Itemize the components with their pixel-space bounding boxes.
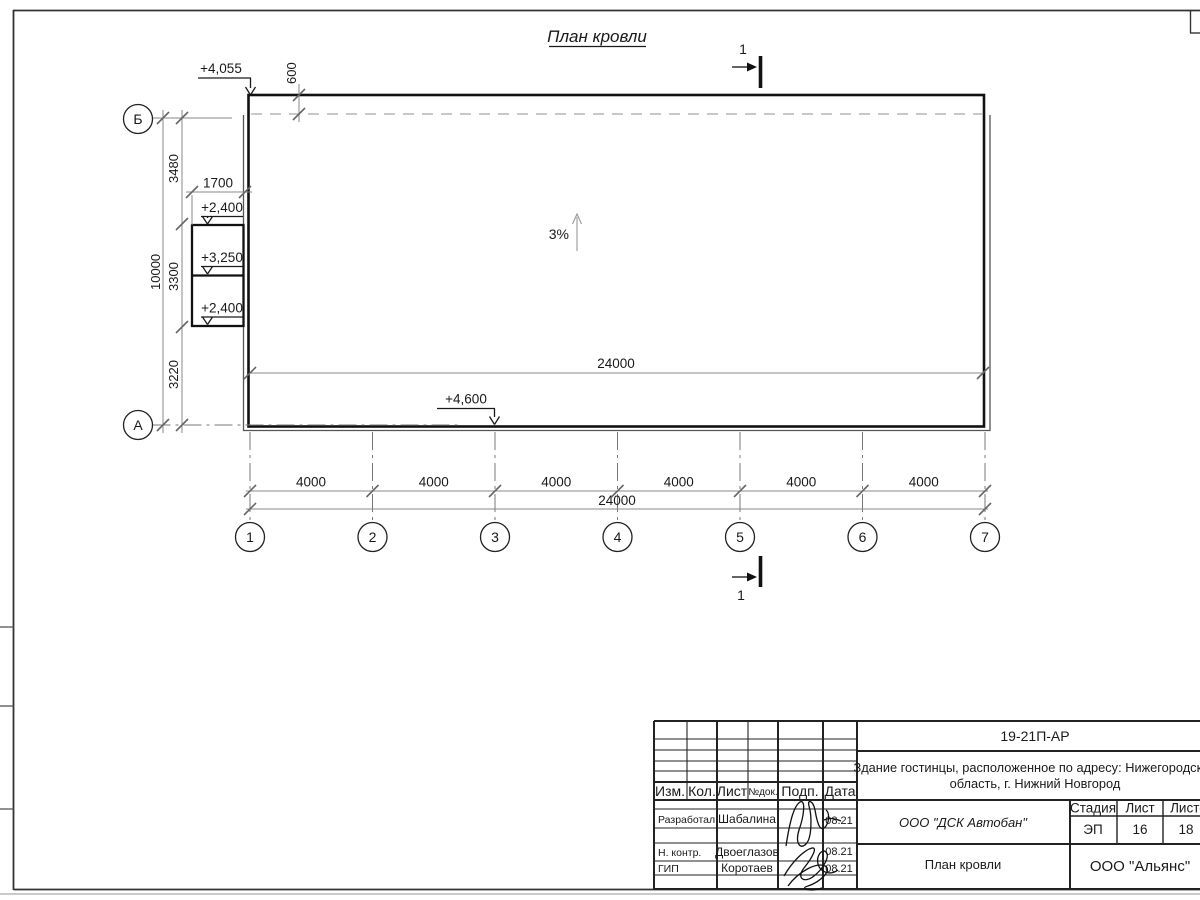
stage-header: Стадия [1070, 801, 1116, 816]
canopy-width-value: 1700 [203, 176, 233, 191]
left-segment-3-value: 3220 [166, 360, 181, 389]
section-mark-bottom: 1 [732, 556, 761, 603]
row-role-ncontrol: Н. контр. [658, 847, 701, 859]
row-name-gip: Коротаев [721, 861, 773, 875]
sheets-header: Листов [1170, 801, 1200, 816]
drawing-sheet: План кровли 24000 3% [0, 0, 1200, 900]
roof-outline [249, 95, 985, 427]
bottom-segment-value: 4000 [909, 475, 939, 490]
axis-b-label: Б [133, 111, 142, 127]
sheet-header: Лист [1125, 801, 1154, 816]
col-header-ndok: №док. [748, 787, 777, 798]
axis-3-label: 3 [491, 529, 499, 545]
overhang-value: 600 [284, 62, 299, 84]
axis-2-label: 2 [369, 529, 377, 545]
axis-7-label: 7 [981, 529, 989, 545]
section-mark-top: 1 [732, 41, 761, 88]
project-name-line1: Здание гостинцы, расположенное по адресу… [853, 760, 1200, 775]
axis-5-label: 5 [736, 529, 744, 545]
axis-1-label: 1 [246, 529, 254, 545]
left-total-value: 10000 [148, 254, 163, 290]
bottom-segment-value: 4000 [419, 475, 449, 490]
section-label-top: 1 [739, 41, 747, 57]
axis-a-label: А [133, 417, 143, 433]
section-arrow-bottom [747, 573, 757, 582]
bottom-total-value: 24000 [598, 493, 636, 508]
elevation-canopy-low-value: +2,400 [201, 301, 243, 316]
row-name-developer: Шабалина [718, 812, 776, 826]
row-role-gip: ГИП [658, 863, 679, 875]
left-segment-1-value: 3480 [166, 154, 181, 183]
bottom-segment-value: 4000 [786, 475, 816, 490]
project-name-line2: область, г. Нижний Новгород [950, 776, 1121, 791]
roof-plan-drawing: План кровли 24000 3% [0, 0, 1200, 900]
col-header-podp: Подп. [781, 783, 818, 799]
section-arrow-top [747, 63, 757, 72]
axis-6-label: 6 [859, 529, 867, 545]
contractor-name: ООО "ДСК Автобан" [899, 815, 1028, 830]
doc-code: 19-21П-АР [1000, 728, 1069, 744]
row-date-ncontrol: 08.21 [825, 846, 853, 858]
col-header-izm: Изм. [655, 783, 685, 799]
stage-value: ЭП [1083, 822, 1102, 837]
bottom-segment-value: 4000 [664, 475, 694, 490]
drawing-title: План кровли [547, 27, 647, 46]
col-header-kol: Кол. [688, 783, 716, 799]
row-date-developer: 08.21 [825, 815, 853, 827]
organization-name: ООО "Альянс" [1090, 858, 1190, 875]
elevation-canopy-top-value: +2,400 [201, 200, 243, 215]
elevation-canopy-mid-value: +3,250 [201, 250, 243, 265]
inner-span-value: 24000 [597, 356, 635, 371]
elevation-roof-top-left [198, 78, 256, 95]
axis-4-label: 4 [614, 529, 622, 545]
elevation-roof-top-left-value: +4,055 [200, 61, 242, 76]
left-segment-2-value: 3300 [166, 262, 181, 291]
col-header-list: Лист [717, 783, 748, 799]
bottom-segment-value: 4000 [296, 475, 326, 490]
row-role-developer: Разработал [658, 814, 715, 826]
sheet-name: План кровли [925, 857, 1002, 872]
slope-label: 3% [549, 226, 569, 242]
bottom-segment-value: 4000 [541, 475, 571, 490]
row-name-ncontrol: Двоеглазов [715, 845, 779, 859]
elevation-roof-bottom-value: +4,600 [445, 392, 487, 407]
title-block: Изм. Кол. Лист №док. Подп. Дата Разработ… [654, 721, 1200, 890]
elevation-canopy-top [201, 217, 243, 225]
section-label-bottom: 1 [737, 587, 745, 603]
sheet-number: 16 [1132, 822, 1147, 837]
col-header-data: Дата [824, 783, 855, 799]
sheets-total: 18 [1178, 822, 1193, 837]
